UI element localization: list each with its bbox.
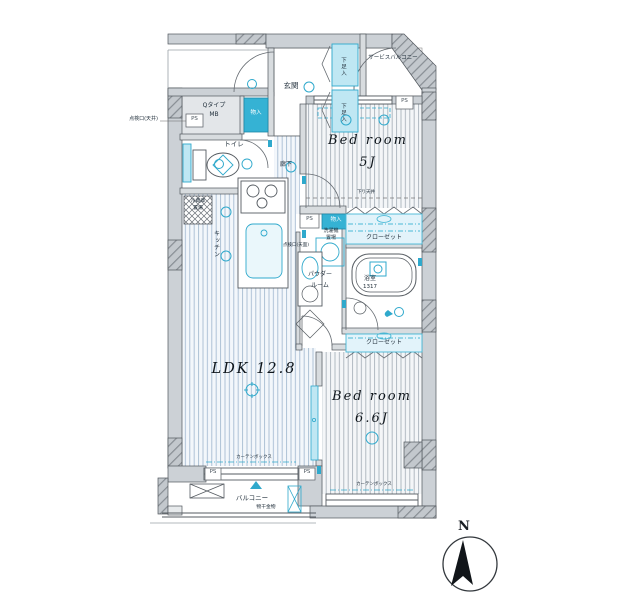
room-label-bed5-size: 5J	[318, 156, 418, 170]
room-label-toilet: トイレ	[212, 141, 256, 148]
room-label-corridor: 廊下	[274, 162, 298, 168]
ps-chip-label: PS	[300, 217, 319, 223]
bed66-window	[326, 494, 418, 506]
fixture-label-storage-entry: 物入	[244, 111, 268, 117]
room-label-powder-1: パウダー	[298, 272, 342, 278]
room-label-service-balcony: サービスバルコニー	[364, 56, 422, 62]
fixture-label-laundry-1: 洗濯機	[314, 229, 348, 234]
ps-chip-label: PS	[186, 117, 203, 123]
compass-icon	[443, 537, 497, 591]
label-inspection-top: 点検口(天面)	[278, 244, 314, 249]
fixture-label-shoe-2: 下足入	[339, 96, 345, 130]
label-inspection-ceiling: 点検口(天井)	[108, 117, 158, 122]
floor-plan-page: 玄関 下足入 下足入 サービスバルコニー Bed room 5J Qタイプ MB…	[0, 0, 634, 600]
fixture-label-fridge-2: 置場	[184, 206, 212, 211]
label-curtain-box-bed66: カーテンボックス	[342, 483, 406, 488]
compass-north-label: N	[452, 520, 476, 534]
room-label-balcony: バルコニー	[220, 495, 284, 502]
room-label-closet-2: クローゼット	[346, 340, 422, 346]
label-mb-type: Qタイプ	[195, 103, 233, 109]
closet1-folding-door	[346, 207, 422, 214]
bed66-sliding-door	[311, 386, 318, 460]
label-laundry-hardware: 物干金物	[242, 505, 290, 510]
room-label-bed66-size: 6.6J	[322, 412, 422, 426]
room-label-bed5-name: Bed room	[318, 134, 418, 148]
room-label-closet-1: クローゼット	[346, 235, 422, 241]
fixture-label-shoe-1: 下足入	[339, 50, 345, 84]
ps-chip-label: PS	[205, 470, 221, 476]
room-label-powder-2: ルーム	[298, 283, 342, 289]
fixture-label-storage-hall: 物入	[322, 218, 350, 224]
fixture-label-laundry-2: 置場	[314, 236, 348, 241]
sink-icon	[246, 224, 282, 278]
ps-chip-label: PS	[396, 99, 413, 105]
room-label-bath-size: 1317	[350, 285, 390, 291]
room-label-kitchen: キッチン	[212, 222, 218, 266]
floor-plan-graphic	[0, 0, 634, 600]
fixture-label-fridge-1: 冷蔵庫	[184, 199, 212, 204]
room-label-bed66-name: Bed room	[322, 390, 422, 404]
label-lowered-ceiling: 下り天井	[346, 191, 386, 196]
ps-chip-label: PS	[299, 470, 315, 476]
room-label-ldk: LDK 12.8	[198, 362, 310, 378]
room-label-genkan: 玄関	[276, 82, 306, 90]
kitchen-counter	[238, 178, 288, 288]
room-label-bath: 浴室	[350, 276, 390, 282]
label-curtain-box-ldk: カーテンボックス	[222, 456, 286, 461]
balcony-railing	[162, 513, 316, 517]
